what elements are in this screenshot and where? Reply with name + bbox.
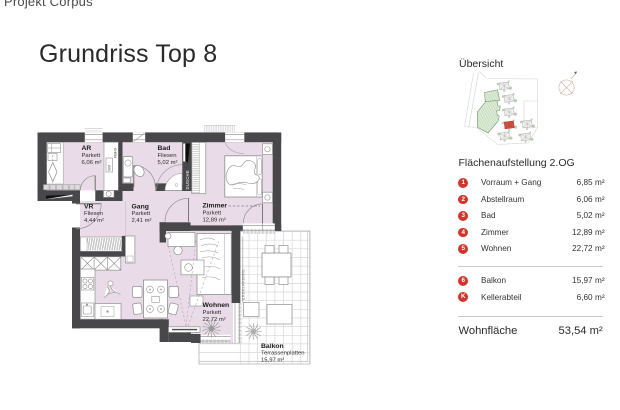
svg-text:FBHV: FBHV (114, 147, 118, 158)
svg-text:22,72 m²: 22,72 m² (203, 317, 226, 323)
svg-text:4,44 m²: 4,44 m² (84, 218, 104, 224)
svg-text:Zimmer: Zimmer (203, 203, 228, 210)
svg-text:Wohnen: Wohnen (203, 302, 230, 309)
svg-text:ERDKLAPERRE: ERDKLAPERRE (242, 269, 246, 300)
svg-text:12,89 m²: 12,89 m² (203, 218, 226, 224)
svg-text:Gang: Gang (132, 203, 149, 210)
svg-text:DUSCHE: DUSCHE (185, 170, 190, 189)
svg-text:Parkett: Parkett (132, 211, 151, 217)
svg-text:Terrassenplatten: Terrassenplatten (261, 351, 305, 357)
svg-text:2,41 m²: 2,41 m² (132, 218, 152, 224)
svg-text:6,06 m²: 6,06 m² (82, 160, 102, 166)
svg-text:AR: AR (82, 145, 92, 152)
svg-text:WM: WM (108, 165, 112, 171)
svg-text:Parkett: Parkett (82, 153, 101, 159)
svg-text:Bad: Bad (158, 145, 171, 152)
svg-text:Balkon: Balkon (261, 343, 284, 350)
svg-text:VR: VR (84, 203, 94, 210)
svg-text:Fliesen: Fliesen (84, 211, 103, 217)
svg-text:Parkett: Parkett (203, 211, 222, 217)
svg-text:15,97 m²: 15,97 m² (261, 357, 284, 363)
svg-text:Fliesen: Fliesen (158, 153, 177, 159)
svg-text:5,02 m²: 5,02 m² (158, 160, 178, 166)
svg-text:Parkett: Parkett (203, 310, 222, 316)
